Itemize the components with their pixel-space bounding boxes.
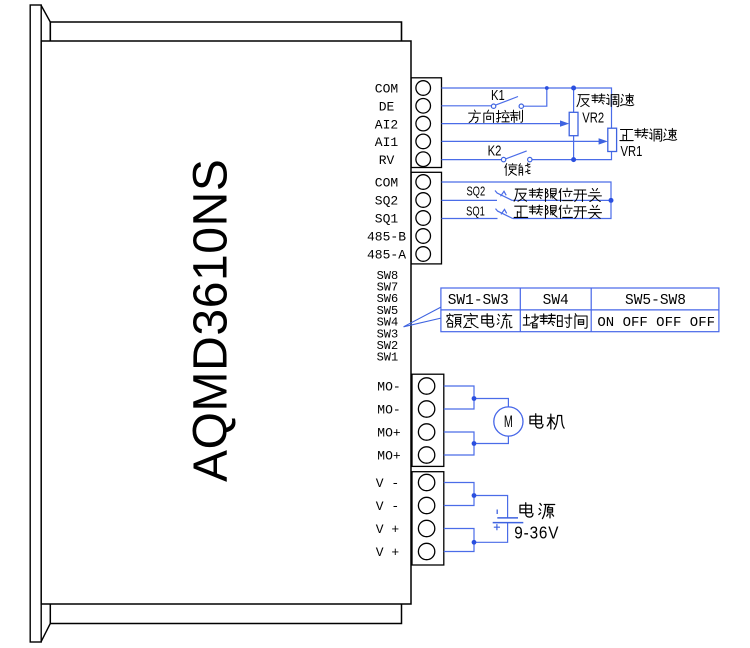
svg-text:ON OFF OFF OFF: ON OFF OFF OFF (597, 315, 715, 331)
svg-text:SW5-SW8: SW5-SW8 (625, 293, 686, 309)
svg-text:SQ1: SQ1 (375, 212, 399, 227)
svg-text:SQ2: SQ2 (375, 194, 398, 209)
svg-text:M: M (504, 412, 513, 431)
svg-text:SW1: SW1 (377, 351, 399, 365)
svg-text:SW1-SW3: SW1-SW3 (448, 293, 509, 309)
svg-text:AQMD3610NS: AQMD3610NS (185, 159, 238, 482)
svg-text:K2: K2 (488, 142, 502, 159)
svg-text:V +: V + (376, 522, 400, 537)
svg-text:485-A: 485-A (367, 248, 406, 263)
svg-text:VR2: VR2 (582, 109, 604, 126)
svg-text:K1: K1 (491, 86, 505, 103)
svg-text:V -: V - (376, 476, 399, 491)
svg-text:V -: V - (376, 499, 399, 514)
svg-text:VR1: VR1 (621, 142, 643, 159)
svg-text:MO-: MO- (377, 403, 400, 418)
svg-text:MO-: MO- (377, 380, 400, 395)
svg-text:DE: DE (379, 100, 395, 115)
svg-text:AI1: AI1 (375, 135, 399, 150)
svg-text:SQ1: SQ1 (466, 205, 485, 219)
svg-text:9-36V: 9-36V (514, 522, 559, 542)
svg-text:RV: RV (379, 153, 395, 168)
svg-text:COM: COM (375, 176, 398, 191)
svg-text:COM: COM (375, 82, 398, 97)
svg-text:485-B: 485-B (367, 230, 406, 245)
svg-text:MO+: MO+ (377, 426, 401, 441)
svg-text:SQ2: SQ2 (466, 185, 485, 199)
svg-text:SW4: SW4 (543, 293, 569, 309)
svg-text:V +: V + (376, 545, 400, 560)
svg-text:MO+: MO+ (377, 449, 401, 464)
svg-text:AI2: AI2 (375, 117, 398, 132)
